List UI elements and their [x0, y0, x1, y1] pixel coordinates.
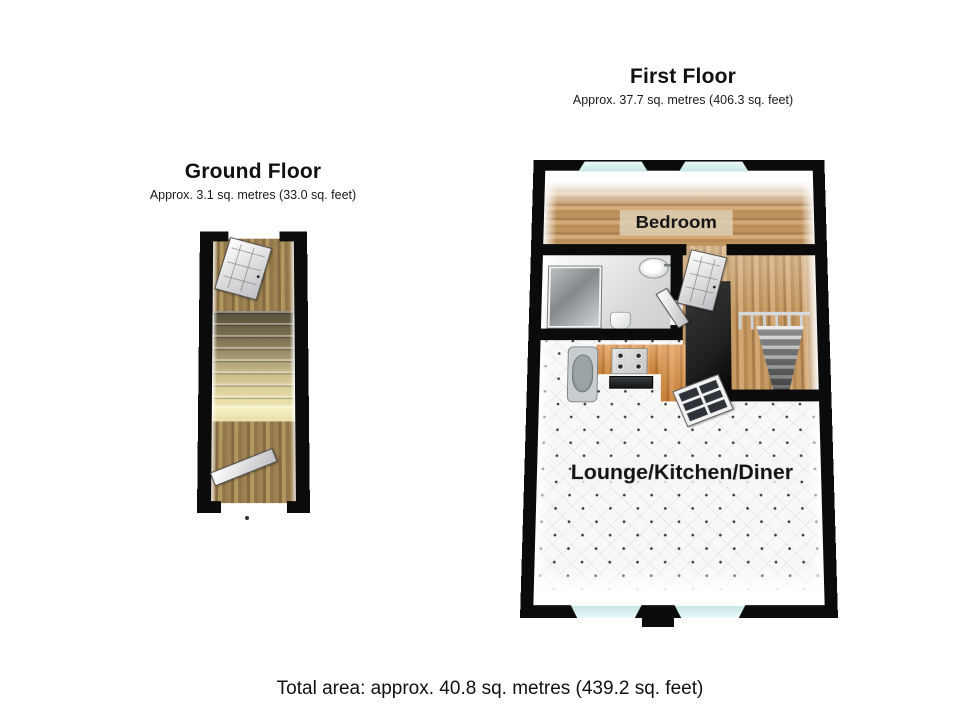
toilet: [610, 312, 631, 330]
gf-wall-right: [294, 232, 310, 513]
gf-wall-bottom-right: [287, 501, 310, 513]
floorplan-canvas: Ground Floor Approx. 3.1 sq. metres (33.…: [0, 0, 980, 712]
ff-bottom-wall-pier: [642, 605, 674, 627]
gf-wall-left: [197, 232, 213, 513]
ff-wall-top: [533, 160, 824, 171]
hob-burner: [616, 362, 625, 370]
wall-bedroom-bottom-right: [726, 244, 815, 255]
kitchen-sink-basin: [572, 354, 594, 392]
gf-wall-top-right: [280, 232, 308, 242]
bedroom-window-right: [678, 162, 749, 174]
first-floor-plan: Bedroom Lounge/Kitchen/Diner: [520, 160, 838, 618]
bedroom-door-knob: [713, 286, 716, 289]
ground-floor-plan: [197, 232, 310, 513]
bedroom-door-panels: [682, 254, 721, 306]
hob-burner: [616, 352, 625, 360]
cooker-hob: [611, 348, 647, 374]
gf-door-swing-marker: [245, 516, 249, 520]
gf-top-door-panels: [220, 242, 266, 294]
bathroom-sink: [639, 258, 669, 279]
hob-burner: [634, 352, 643, 360]
lounge-window-left: [570, 604, 642, 618]
kitchen-sink-unit: [567, 346, 599, 402]
lounge-kitchen-diner-label: Lounge/Kitchen/Diner: [571, 459, 793, 487]
oven-front: [609, 376, 653, 389]
first-floor-title: First Floor: [533, 65, 833, 89]
gf-bottom-tread: [211, 408, 297, 421]
gf-staircase: [213, 311, 294, 416]
gf-wall-top-left: [200, 232, 229, 242]
wall-bathroom-bottom: [541, 329, 683, 341]
gf-top-door-knob: [256, 275, 260, 278]
wall-landing-bottom: [718, 390, 819, 402]
first-floor-subtitle: Approx. 37.7 sq. metres (406.3 sq. feet): [523, 93, 843, 107]
shower-cubicle: [548, 266, 602, 327]
hob-burner: [634, 362, 643, 370]
bedroom-label: Bedroom: [620, 210, 733, 235]
ground-floor-subtitle: Approx. 3.1 sq. metres (33.0 sq. feet): [93, 188, 413, 202]
lounge-window-right: [674, 604, 746, 618]
gf-wall-bottom-left: [197, 501, 221, 513]
bedroom-window-left: [577, 162, 649, 174]
wall-bedroom-bottom-left: [543, 244, 687, 255]
total-area-text: Total area: approx. 40.8 sq. metres (439…: [0, 678, 980, 700]
ground-floor-title: Ground Floor: [103, 160, 403, 184]
